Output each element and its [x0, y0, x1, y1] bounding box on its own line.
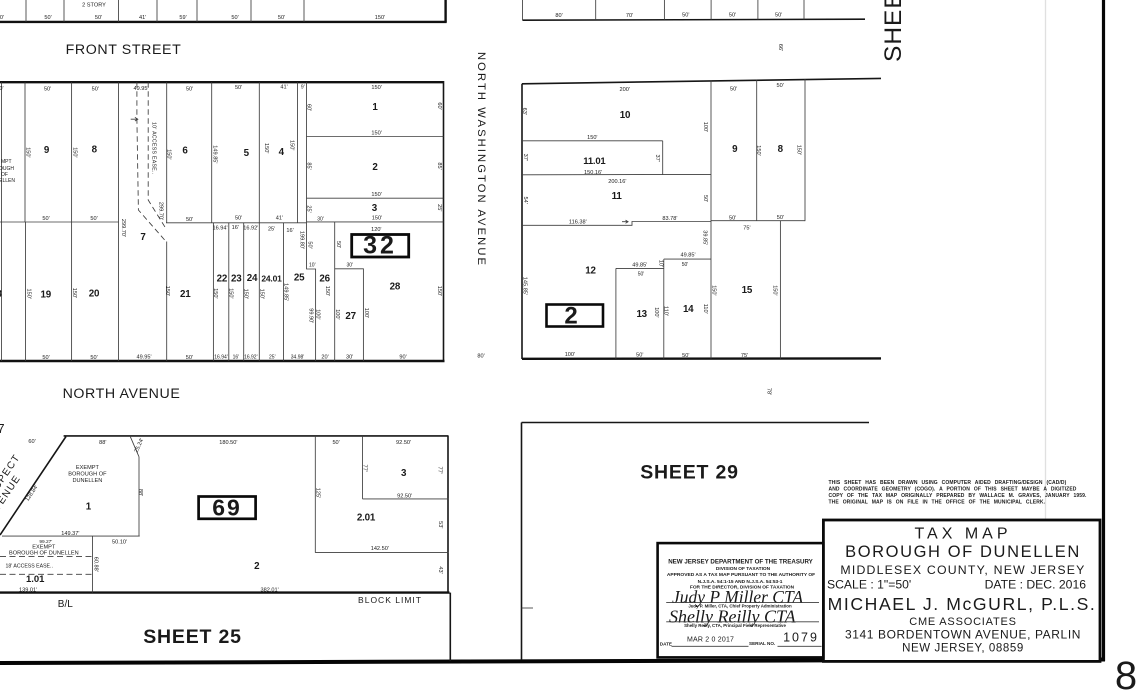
svg-text:50': 50' — [636, 352, 643, 358]
svg-text:8: 8 — [92, 145, 98, 156]
svg-text:63': 63' — [521, 108, 527, 115]
svg-text:ELLEN: ELLEN — [0, 178, 15, 184]
svg-text:1.01: 1.01 — [26, 574, 45, 585]
svg-text:150': 150' — [25, 147, 31, 157]
svg-text:N.J.S.A. 54:1-15 AND N.J.S.A.: N.J.S.A. 54:1-15 AND N.J.S.A. 54:53-1 — [698, 579, 783, 585]
svg-text:BLOCK LIMIT: BLOCK LIMIT — [358, 595, 422, 605]
svg-text:150': 150' — [371, 85, 381, 91]
svg-text:145.85': 145.85' — [521, 277, 527, 295]
svg-text:DATE: DATE — [660, 641, 672, 646]
svg-text:NORTH WASHINGTON AVENUE: NORTH WASHINGTON AVENUE — [475, 52, 487, 267]
svg-text:77': 77' — [362, 465, 368, 472]
svg-text:92.50': 92.50' — [397, 493, 412, 499]
svg-text:180.50': 180.50' — [219, 440, 237, 446]
svg-text:EXEMPT: EXEMPT — [32, 544, 56, 550]
svg-text:9: 9 — [732, 144, 738, 155]
svg-text:200': 200' — [619, 87, 629, 93]
svg-text:50': 50' — [235, 216, 242, 222]
svg-text:BOROUGH OF DUNELLEN: BOROUGH OF DUNELLEN — [9, 551, 79, 557]
svg-text:MPT: MPT — [1, 159, 12, 165]
svg-text:16.92': 16.92' — [243, 226, 258, 232]
svg-text:43': 43' — [437, 566, 443, 573]
svg-text:DIVISION OF TAXATION: DIVISION OF TAXATION — [716, 566, 771, 572]
svg-text:199.80': 199.80' — [298, 231, 304, 249]
svg-text:150': 150' — [166, 149, 172, 159]
svg-text:150': 150' — [71, 288, 77, 298]
svg-text:SHEET 25: SHEET 25 — [143, 626, 242, 648]
svg-text:54': 54' — [522, 197, 528, 204]
svg-text:DUNELLEN: DUNELLEN — [72, 478, 102, 484]
svg-text:150': 150' — [372, 215, 382, 221]
svg-text:3: 3 — [372, 203, 378, 214]
svg-text:382.01': 382.01' — [261, 587, 279, 593]
svg-text:50': 50' — [638, 272, 645, 278]
svg-text:1: 1 — [86, 501, 92, 512]
svg-text:COPY OF THE TAX MAP ORIGINALLY: COPY OF THE TAX MAP ORIGINALLY PREPARED … — [829, 493, 1088, 499]
svg-text:150': 150' — [259, 289, 265, 299]
svg-text:150': 150' — [371, 131, 381, 137]
svg-text:30': 30' — [346, 354, 353, 360]
svg-text:21: 21 — [180, 289, 191, 300]
svg-text:120': 120' — [371, 227, 381, 233]
svg-text:TAX MAP: TAX MAP — [914, 526, 1011, 543]
svg-text:BOROUGH OF DUNELLEN: BOROUGH OF DUNELLEN — [845, 543, 1081, 561]
svg-text:0': 0' — [0, 86, 4, 92]
svg-text:16': 16' — [232, 225, 239, 231]
svg-text:85': 85' — [306, 162, 312, 169]
svg-text:10: 10 — [620, 110, 631, 121]
svg-text:50': 50' — [90, 355, 97, 361]
svg-text:11.01: 11.01 — [583, 156, 606, 167]
svg-text:50': 50' — [42, 216, 49, 222]
svg-text:150': 150' — [755, 145, 761, 155]
svg-text:20': 20' — [321, 354, 328, 360]
svg-text:150': 150' — [227, 288, 233, 298]
svg-text:150': 150' — [375, 15, 385, 21]
svg-text:50': 50' — [775, 12, 782, 18]
svg-text:41': 41' — [276, 216, 283, 222]
svg-text:80': 80' — [477, 354, 484, 360]
svg-text:50': 50' — [777, 83, 784, 89]
svg-text:MIDDLESEX COUNTY, NEW JERSEY: MIDDLESEX COUNTY, NEW JERSEY — [840, 563, 1085, 577]
svg-text:Shelly Reilly, CTA, Principal: Shelly Reilly, CTA, Principal Field Repr… — [684, 623, 786, 628]
svg-text:92.50': 92.50' — [396, 440, 411, 446]
svg-text:110': 110' — [702, 304, 708, 314]
svg-text:66': 66' — [777, 44, 783, 51]
svg-text:34.98': 34.98' — [291, 355, 305, 361]
svg-text:80': 80' — [555, 13, 562, 19]
svg-text:27: 27 — [345, 311, 356, 322]
svg-text:50': 50' — [186, 217, 193, 223]
svg-text:83.78': 83.78' — [662, 216, 677, 222]
svg-text:18' ACCESS EASE..: 18' ACCESS EASE.. — [5, 564, 52, 570]
svg-text:70': 70' — [626, 13, 633, 19]
svg-text:3: 3 — [401, 468, 407, 479]
svg-text:50': 50' — [92, 87, 99, 93]
svg-text:50': 50' — [332, 440, 339, 446]
svg-text:3141 BORDENTOWN AVENUE, PARLIN: 3141 BORDENTOWN AVENUE, PARLIN — [845, 628, 1081, 642]
svg-text:25': 25' — [269, 354, 276, 360]
svg-text:50': 50' — [335, 241, 341, 248]
svg-text:2: 2 — [372, 162, 378, 173]
svg-text:B/L: B/L — [58, 599, 73, 610]
svg-text:41': 41' — [139, 15, 146, 21]
svg-text:50': 50' — [682, 262, 689, 268]
svg-text:5: 5 — [244, 148, 250, 159]
svg-text:53': 53' — [437, 521, 443, 528]
svg-text:25': 25' — [436, 204, 442, 211]
svg-text:99.90': 99.90' — [307, 308, 313, 323]
svg-text:37': 37' — [654, 155, 660, 162]
svg-text:THIS SHEET HAS BEEN DRAWN USIN: THIS SHEET HAS BEEN DRAWN USING COMPUTER… — [829, 480, 1067, 486]
svg-text:49.85': 49.85' — [632, 263, 647, 269]
svg-text:299.70': 299.70' — [120, 219, 126, 237]
svg-text:BOROUGH OF: BOROUGH OF — [68, 472, 107, 478]
svg-text:NORTH AVENUE: NORTH AVENUE — [63, 386, 181, 402]
svg-text:19: 19 — [41, 290, 52, 301]
svg-text:16.94': 16.94' — [212, 226, 227, 232]
svg-text:150': 150' — [324, 286, 330, 296]
svg-text:50': 50' — [231, 15, 238, 21]
svg-text:16.92': 16.92' — [244, 355, 258, 361]
svg-text:41': 41' — [280, 85, 287, 91]
svg-text:150': 150' — [164, 286, 170, 296]
svg-text:SCALE : 1"=50': SCALE : 1"=50' — [827, 578, 911, 592]
svg-text:50.10': 50.10' — [112, 540, 127, 546]
svg-text:100': 100' — [314, 309, 320, 319]
svg-text:88': 88' — [99, 440, 106, 446]
svg-text:150': 150' — [587, 135, 597, 141]
svg-text:11: 11 — [612, 191, 623, 202]
svg-text:125': 125' — [314, 488, 320, 498]
svg-text:2: 2 — [564, 303, 577, 330]
svg-text:22: 22 — [217, 274, 228, 285]
svg-text:10' ACCESS EASE..: 10' ACCESS EASE.. — [151, 122, 157, 175]
svg-text:299.70': 299.70' — [157, 202, 163, 220]
svg-text:116.38': 116.38' — [569, 220, 587, 226]
svg-text:50': 50' — [44, 15, 51, 21]
svg-text:16': 16' — [233, 354, 240, 360]
svg-text:32: 32 — [363, 232, 397, 260]
svg-text:13: 13 — [636, 309, 647, 320]
svg-text:50': 50' — [729, 216, 736, 222]
svg-text:50': 50' — [777, 215, 784, 221]
svg-text:10': 10' — [657, 260, 663, 267]
svg-text:50': 50' — [44, 87, 51, 93]
svg-text:78': 78' — [766, 388, 772, 395]
svg-text:50': 50' — [186, 87, 193, 93]
svg-text:150': 150' — [263, 143, 269, 153]
svg-text:150': 150' — [371, 192, 381, 198]
svg-text:25': 25' — [268, 227, 275, 233]
svg-text:100': 100' — [363, 308, 369, 318]
svg-text:28: 28 — [390, 282, 401, 293]
svg-text:49.95': 49.95' — [133, 86, 148, 92]
svg-text:CME ASSOCIATES: CME ASSOCIATES — [909, 616, 1017, 628]
svg-text:0': 0' — [0, 15, 4, 21]
svg-text:MICHAEL J. McGURL, P.L.S.: MICHAEL J. McGURL, P.L.S. — [828, 594, 1097, 614]
svg-text:7: 7 — [0, 421, 5, 436]
svg-text:75': 75' — [741, 353, 748, 359]
svg-text:60': 60' — [28, 439, 35, 445]
svg-text:150': 150' — [796, 145, 802, 155]
svg-text:SHEET 29: SHEET 29 — [640, 462, 739, 484]
svg-text:7: 7 — [140, 232, 146, 243]
svg-text:APPROVED AS A TAX MAP PURSUANT: APPROVED AS A TAX MAP PURSUANT TO THE AU… — [667, 572, 815, 578]
svg-text:1: 1 — [372, 102, 378, 113]
svg-text:100': 100' — [334, 309, 340, 319]
svg-text:8: 8 — [778, 144, 784, 155]
svg-text:49.95': 49.95' — [136, 355, 151, 361]
svg-text:50': 50' — [278, 15, 285, 21]
svg-text:50': 50' — [95, 15, 102, 21]
svg-text:16': 16' — [286, 228, 293, 234]
svg-text:100': 100' — [565, 352, 575, 358]
svg-text:139.01': 139.01' — [19, 587, 37, 593]
svg-text:THE ORIGINAL MAP IS ON FILE IN: THE ORIGINAL MAP IS ON FILE IN THE OFFIC… — [829, 500, 1046, 506]
svg-text:30': 30' — [317, 217, 324, 223]
svg-text:149.85': 149.85' — [283, 283, 289, 301]
svg-text:EXEMPT: EXEMPT — [76, 465, 100, 471]
svg-text:DATE : DEC. 2016: DATE : DEC. 2016 — [985, 578, 1087, 592]
svg-text:60': 60' — [436, 102, 442, 109]
svg-text:50': 50' — [729, 13, 736, 19]
svg-text:OUGH: OUGH — [0, 166, 14, 172]
svg-text:NEW JERSEY, 08859: NEW JERSEY, 08859 — [902, 643, 1024, 655]
svg-text:8: 8 — [1115, 654, 1137, 695]
svg-text:149.85': 149.85' — [212, 145, 218, 163]
svg-text:6: 6 — [182, 146, 188, 157]
svg-text:SHEET: SHEET — [880, 0, 907, 62]
svg-text:150': 150' — [212, 288, 218, 298]
svg-text:59': 59' — [179, 15, 186, 21]
svg-text:9': 9' — [301, 85, 305, 91]
svg-text:150': 150' — [710, 285, 716, 295]
svg-text:2 STORY: 2 STORY — [82, 3, 106, 9]
svg-text:142.50': 142.50' — [371, 546, 389, 552]
svg-text:39.85': 39.85' — [701, 230, 707, 245]
svg-text:12: 12 — [585, 265, 596, 276]
svg-text:150': 150' — [772, 285, 778, 295]
svg-text:50': 50' — [702, 195, 708, 202]
svg-text:60.88': 60.88' — [92, 557, 98, 572]
svg-text:SERIAL NO.: SERIAL NO. — [749, 641, 775, 646]
svg-text:50': 50' — [235, 85, 242, 91]
svg-text:77': 77' — [436, 466, 442, 473]
svg-text:2.01: 2.01 — [357, 512, 376, 523]
svg-text:23: 23 — [231, 274, 242, 285]
svg-text:50': 50' — [42, 355, 49, 361]
svg-text:AND COORDINATE GEOMETRY (COGO): AND COORDINATE GEOMETRY (COGO). A PORTIO… — [829, 487, 1077, 493]
svg-text:15: 15 — [742, 285, 753, 296]
svg-text:16.94': 16.94' — [214, 355, 228, 361]
svg-text:MAR 2 0 2017: MAR 2 0 2017 — [687, 637, 734, 644]
svg-text:14: 14 — [683, 304, 694, 315]
svg-text:50': 50' — [682, 353, 689, 359]
svg-text:69: 69 — [212, 494, 242, 520]
svg-text:9: 9 — [44, 145, 50, 156]
svg-text:200.16': 200.16' — [608, 179, 626, 185]
svg-text:FRONT STREET: FRONT STREET — [66, 42, 182, 58]
svg-text:50': 50' — [730, 87, 737, 93]
svg-text:1079: 1079 — [783, 631, 819, 645]
svg-text:100': 100' — [702, 122, 708, 132]
svg-text:26: 26 — [319, 274, 330, 285]
svg-text:4: 4 — [279, 147, 285, 158]
svg-text:90': 90' — [399, 354, 406, 360]
svg-text:150': 150' — [436, 286, 442, 296]
svg-text:150': 150' — [243, 289, 249, 299]
svg-text:110': 110' — [663, 306, 669, 316]
svg-text:30': 30' — [347, 262, 354, 268]
svg-text:100': 100' — [653, 307, 659, 317]
svg-text:10': 10' — [309, 262, 316, 268]
svg-text:85': 85' — [436, 162, 442, 169]
svg-text:NEW JERSEY DEPARTMENT OF THE T: NEW JERSEY DEPARTMENT OF THE TREASURY — [668, 558, 813, 565]
svg-text:50': 50' — [682, 13, 689, 19]
svg-text:75': 75' — [743, 226, 750, 232]
svg-text:20: 20 — [89, 289, 100, 300]
svg-text:60': 60' — [306, 104, 312, 111]
svg-text:2: 2 — [254, 561, 260, 572]
svg-text:50': 50' — [90, 216, 97, 222]
svg-text:149.37': 149.37' — [61, 531, 79, 537]
svg-text:25: 25 — [294, 273, 305, 284]
svg-text:25': 25' — [306, 205, 312, 212]
svg-text:50': 50' — [306, 241, 312, 248]
svg-text:150': 150' — [289, 140, 295, 150]
svg-text:37': 37' — [522, 154, 528, 161]
svg-text:150': 150' — [25, 288, 31, 298]
svg-text:150': 150' — [71, 147, 77, 157]
svg-text:88': 88' — [137, 489, 143, 496]
svg-text:24: 24 — [247, 273, 258, 284]
svg-text:24.01: 24.01 — [261, 274, 282, 284]
svg-text:50': 50' — [186, 355, 193, 361]
svg-text:49.85': 49.85' — [680, 252, 695, 258]
svg-text:150.16': 150.16' — [584, 170, 602, 176]
